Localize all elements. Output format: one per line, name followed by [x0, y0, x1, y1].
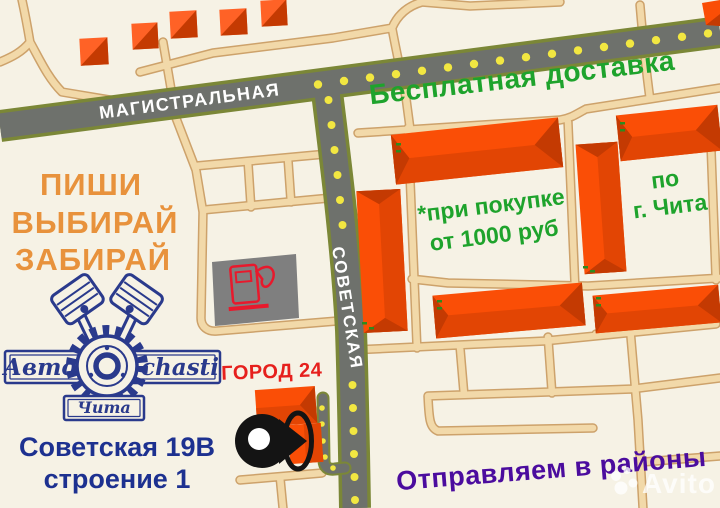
promo-line-2: ВЫБИРАЙ [12, 204, 179, 240]
address-line-2: строение 1 [44, 464, 191, 494]
store-name-text: ГОРОД 24 [221, 359, 323, 385]
promo-line-1: ПИШИ [40, 167, 142, 202]
house [260, 0, 287, 27]
promo-line-3: ЗАБИРАЙ [15, 241, 171, 277]
house [79, 37, 108, 65]
map-image: МАГИСТРАЛЬНАЯ СОВЕТСКАЯ ПИШИ ВЫБИРАЙ ЗАБ… [0, 0, 720, 508]
logo-word-left: Авто [1, 354, 77, 381]
gas-station [212, 254, 299, 326]
address-line-1: Советская 19В [19, 432, 215, 462]
house [219, 8, 247, 35]
building [356, 189, 407, 333]
house [131, 22, 158, 49]
watermark-text: Avito [642, 468, 716, 499]
house [169, 10, 197, 38]
logo-city-text: Чита [77, 398, 131, 417]
logo-word-right: chasti [141, 354, 219, 381]
city-area-line-1: по [650, 164, 681, 193]
